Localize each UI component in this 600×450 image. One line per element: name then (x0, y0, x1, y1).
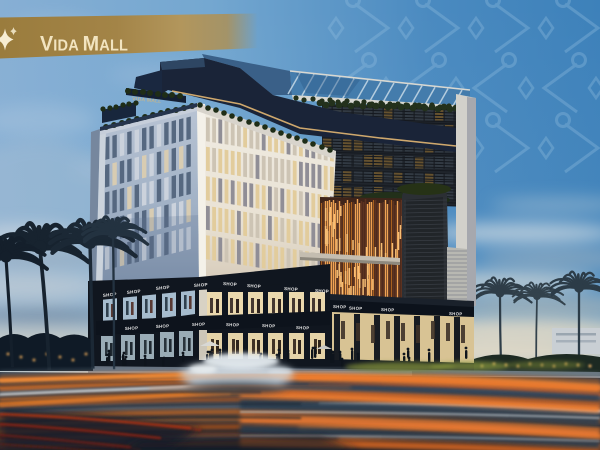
svg-text:SHOP: SHOP (125, 325, 139, 331)
svg-text:SHOP: SHOP (223, 281, 237, 287)
svg-text:SHOP: SHOP (284, 286, 298, 292)
svg-text:SHOP: SHOP (381, 307, 395, 312)
svg-text:SHOP: SHOP (315, 288, 329, 294)
svg-text:SHOP: SHOP (449, 311, 463, 316)
svg-text:SHOP: SHOP (247, 283, 261, 289)
svg-text:VIDA MALL: VIDA MALL (40, 33, 128, 56)
svg-text:SHOP: SHOP (333, 304, 347, 309)
svg-text:SHOP: SHOP (194, 282, 208, 288)
svg-text:SHOP: SHOP (296, 325, 310, 330)
svg-text:SHOP: SHOP (349, 306, 363, 311)
svg-text:SHOP: SHOP (156, 323, 170, 329)
svg-text:SHOP: SHOP (262, 323, 276, 328)
svg-text:SHOP: SHOP (192, 322, 206, 327)
svg-text:SHOP: SHOP (226, 322, 240, 327)
